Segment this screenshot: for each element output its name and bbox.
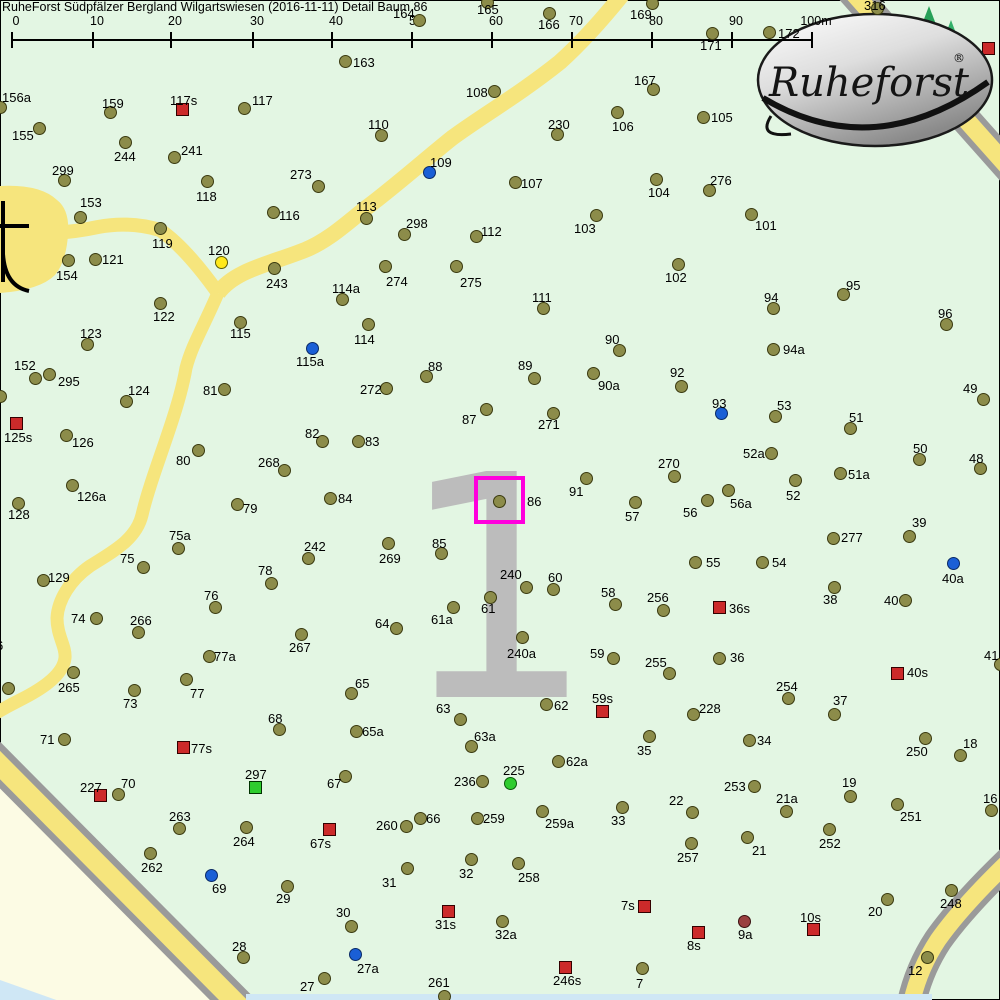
tree-marker-240a[interactable]: [516, 631, 529, 644]
tree-marker-264[interactable]: [240, 821, 253, 834]
tree-marker-121[interactable]: [89, 253, 102, 266]
tree-label: 225: [503, 763, 525, 778]
tree-marker-260[interactable]: [400, 820, 413, 833]
tree-marker-114[interactable]: [362, 318, 375, 331]
tree-label: 256: [647, 590, 669, 605]
tree-label: 78: [258, 563, 272, 578]
tree-label: 91: [569, 484, 583, 499]
tree-label: 81: [203, 383, 217, 398]
tree-label: 65a: [362, 724, 384, 739]
tree-label: 259: [483, 811, 505, 826]
tree-marker-52a[interactable]: [765, 447, 778, 460]
tree-label: 156a: [2, 90, 31, 105]
map-title: RuheForst Südpfälzer Bergland Wilgartswi…: [2, 0, 427, 14]
tree-label: 262: [141, 860, 163, 875]
tree-label: 165: [477, 2, 499, 17]
tree-marker-7[interactable]: [636, 962, 649, 975]
tree-label: 51a: [848, 467, 870, 482]
tree-marker-89[interactable]: [528, 372, 541, 385]
tree-label: 275: [460, 275, 482, 290]
tree-label: 267: [289, 640, 311, 655]
tree-marker-240[interactable]: [520, 581, 533, 594]
tree-label: 32a: [495, 927, 517, 942]
tree-marker-37[interactable]: [828, 708, 841, 721]
tree-marker-67s[interactable]: [323, 823, 336, 836]
tree-marker-246s[interactable]: [559, 961, 572, 974]
tree-label: 299: [52, 163, 74, 178]
tree-label: 253: [724, 779, 746, 794]
tree-marker-62a[interactable]: [552, 755, 565, 768]
tree-label: 64: [375, 616, 389, 631]
tree-label: 20: [868, 904, 882, 919]
tree-marker-152[interactable]: [29, 372, 42, 385]
tree-label: 85: [432, 536, 446, 551]
tree-label: 116: [279, 208, 300, 223]
tree-label: 93: [712, 396, 726, 411]
tree-label: 36s: [729, 601, 750, 616]
tree-label: 82: [305, 426, 319, 441]
tree-label: 55: [706, 555, 720, 570]
tree-label: 295: [58, 374, 80, 389]
scale-tick-label: 0: [13, 14, 20, 28]
tree-label: 263: [169, 809, 191, 824]
tree-label: 87: [462, 412, 476, 427]
tree-marker-31s[interactable]: [442, 905, 455, 918]
tree-label: 18: [963, 736, 977, 751]
tree-marker-57[interactable]: [629, 496, 642, 509]
tree-label: 79: [243, 501, 257, 516]
tree-marker-56[interactable]: [701, 494, 714, 507]
tree-marker-262[interactable]: [144, 847, 157, 860]
tree-marker-258[interactable]: [512, 857, 525, 870]
tree-label: 316: [864, 0, 886, 13]
tree-label: 33: [611, 813, 625, 828]
tree-label: 83: [365, 434, 379, 449]
scale-tick-label: 20: [168, 14, 182, 28]
tree-label: 7: [636, 976, 643, 991]
tree-marker-9a[interactable]: [738, 915, 751, 928]
tree-marker-77[interactable]: [180, 673, 193, 686]
tree-marker[interactable]: [2, 682, 15, 695]
tree-label: 103: [574, 221, 596, 236]
tree-label: 31: [382, 875, 396, 890]
tree-marker-228[interactable]: [687, 708, 700, 721]
tree-label: 101: [755, 218, 777, 233]
tree-marker-7s[interactable]: [638, 900, 651, 913]
tree-marker-107[interactable]: [509, 176, 522, 189]
tree-marker-40[interactable]: [899, 594, 912, 607]
tree-marker-35[interactable]: [643, 730, 656, 743]
tree-label: 80: [176, 453, 190, 468]
tree-label: 154: [56, 268, 78, 283]
tree-label: 27: [300, 979, 314, 994]
tree-label: 32: [459, 866, 473, 881]
tree-marker-33[interactable]: [616, 801, 629, 814]
tree-label: 115: [230, 326, 251, 341]
tree-label: 31s: [435, 917, 456, 932]
tree-label: 123: [80, 326, 102, 341]
tree-label: 84: [338, 491, 352, 506]
scale-tick-label: 40: [329, 14, 343, 28]
tree-marker-94a[interactable]: [767, 343, 780, 356]
tree-label: 92: [670, 365, 684, 380]
tree-marker-277[interactable]: [827, 532, 840, 545]
tree-label: 40a: [942, 571, 964, 586]
tree-marker-83[interactable]: [352, 435, 365, 448]
tree-marker-75a[interactable]: [172, 542, 185, 555]
tree-label: 228: [699, 701, 721, 716]
tree-marker-297[interactable]: [249, 781, 262, 794]
tree-label: 257: [677, 850, 699, 865]
tree-label: 62: [554, 698, 568, 713]
tree-label: 152: [14, 358, 36, 373]
tree-label: 230: [548, 117, 570, 132]
tree-label: 265: [58, 680, 80, 695]
tree-marker-59[interactable]: [607, 652, 620, 665]
map-page: 1 Ruheforst ® 0102030405060708090100m Ru…: [0, 0, 1000, 1000]
tree-label: 105: [711, 110, 733, 125]
tree-marker-172[interactable]: [763, 26, 776, 39]
tree-marker-51a[interactable]: [834, 467, 847, 480]
tree-label: 248: [940, 896, 962, 911]
tree-marker-261[interactable]: [438, 990, 451, 1000]
tree-marker-163[interactable]: [339, 55, 352, 68]
tree-label: 124: [128, 383, 150, 398]
tree-label: 62a: [566, 754, 588, 769]
tree-marker-54[interactable]: [756, 556, 769, 569]
tree-marker-225[interactable]: [504, 777, 517, 790]
tree-label: 270: [658, 456, 680, 471]
tree-marker-65a[interactable]: [350, 725, 363, 738]
tree-label: 108: [466, 85, 488, 100]
tree-label: 252: [819, 836, 841, 851]
tree-label: 241: [181, 143, 203, 158]
tree-marker-117[interactable]: [238, 102, 251, 115]
tree-label: 67: [327, 776, 341, 791]
tree-label: 69: [212, 881, 226, 896]
tree-marker-118[interactable]: [201, 175, 214, 188]
tree-marker-273[interactable]: [312, 180, 325, 193]
tree-marker-55[interactable]: [689, 556, 702, 569]
tree-marker-12[interactable]: [921, 951, 934, 964]
tree-marker-59s[interactable]: [596, 705, 609, 718]
tree-marker-66[interactable]: [414, 812, 427, 825]
tree-marker-19[interactable]: [844, 790, 857, 803]
tree-label: 61a: [431, 612, 453, 627]
tree-marker-105[interactable]: [697, 111, 710, 124]
tree-marker-34[interactable]: [743, 734, 756, 747]
tree-label: 73: [123, 696, 137, 711]
tree-marker-71[interactable]: [58, 733, 71, 746]
tree-marker-21a[interactable]: [780, 805, 793, 818]
tree-marker-62[interactable]: [540, 698, 553, 711]
logo-wordmark: Ruheforst: [768, 60, 970, 106]
tree-label: 246s: [553, 973, 581, 988]
tree-label: 259a: [545, 816, 574, 831]
tree-marker-248[interactable]: [945, 884, 958, 897]
tree-label: 109: [430, 155, 452, 170]
tree-marker-154[interactable]: [62, 254, 75, 267]
tree-label: 128: [8, 507, 30, 522]
tree-label: 37: [833, 693, 847, 708]
tree-label: 297: [245, 767, 267, 782]
tree-marker-64[interactable]: [390, 622, 403, 635]
tree-label: 159: [102, 96, 124, 111]
tree-label: 36: [730, 650, 744, 665]
tree-marker-79[interactable]: [231, 498, 244, 511]
tree-marker-78[interactable]: [265, 577, 278, 590]
tree-label: 258: [518, 870, 540, 885]
tree-marker-295[interactable]: [43, 368, 56, 381]
tree-marker-103[interactable]: [590, 209, 603, 222]
tree-label: 102: [665, 270, 687, 285]
tree-label: 251: [900, 809, 922, 824]
tree-label: 50: [913, 441, 927, 456]
tree-label: 40s: [907, 665, 928, 680]
tree-marker-91[interactable]: [580, 472, 593, 485]
tree-label: 52: [786, 488, 800, 503]
scale-tick-label: 30: [250, 14, 264, 28]
tree-label: 164: [393, 6, 415, 21]
tree-label: 74: [71, 611, 85, 626]
tree-label: 118: [196, 189, 217, 204]
tree-label: 59: [590, 646, 604, 661]
tree-label: 172: [778, 26, 800, 41]
tree-marker-36[interactable]: [713, 652, 726, 665]
tree-label: 153: [80, 195, 102, 210]
tree-label: 66: [426, 811, 440, 826]
tree-label: 261: [428, 975, 450, 990]
tree-marker-80[interactable]: [192, 444, 205, 457]
tree-marker-104[interactable]: [650, 173, 663, 186]
tree-marker-27a[interactable]: [349, 948, 362, 961]
tree-label: 120: [208, 243, 230, 258]
tree-label: 274: [386, 274, 408, 289]
tree-label: 68: [268, 711, 282, 726]
tree-label: 89: [518, 358, 532, 373]
tree-label: 266: [130, 613, 152, 628]
tree-label: 28: [232, 939, 246, 954]
tree-marker-30[interactable]: [345, 920, 358, 933]
tree-marker-270[interactable]: [668, 470, 681, 483]
tree-label: 77a: [214, 649, 236, 664]
tree-marker-56a[interactable]: [722, 484, 735, 497]
tree-label: 121: [102, 252, 124, 267]
tree-label: 94a: [783, 342, 805, 357]
tree-marker-52[interactable]: [789, 474, 802, 487]
scale-tick-label: 70: [569, 14, 583, 28]
tree-marker-126[interactable]: [60, 429, 73, 442]
tree-marker-74[interactable]: [90, 612, 103, 625]
tree-marker-253[interactable]: [748, 780, 761, 793]
tree-label: 264: [233, 834, 255, 849]
tree-label: 21: [752, 843, 766, 858]
tree-marker-36s[interactable]: [713, 601, 726, 614]
scale-tick-label: 10: [90, 14, 104, 28]
tree-label: 70: [121, 776, 135, 791]
tree-label: 41: [984, 648, 998, 663]
tree-label: 8s: [687, 938, 701, 953]
tree-label: 169: [630, 7, 652, 22]
tree-label: 63a: [474, 729, 496, 744]
tree-label: 12: [908, 963, 922, 978]
tree-label: 27a: [357, 961, 379, 976]
tree-marker-265[interactable]: [67, 666, 80, 679]
tree-marker-69[interactable]: [205, 869, 218, 882]
tree-marker-75[interactable]: [137, 561, 150, 574]
tree-label: 255: [645, 655, 667, 670]
tree-marker-250[interactable]: [919, 732, 932, 745]
tree-marker-274[interactable]: [379, 260, 392, 273]
tree-label: 34: [757, 733, 771, 748]
tree-label: 30: [336, 905, 350, 920]
tree-marker-84[interactable]: [324, 492, 337, 505]
tree-marker-267[interactable]: [295, 628, 308, 641]
tree-marker-81[interactable]: [218, 383, 231, 396]
tree-label: 54: [772, 555, 786, 570]
tree-label: 58: [601, 585, 615, 600]
tree-label: 29: [276, 891, 290, 906]
tree-label: 242: [304, 539, 326, 554]
tree-marker-259[interactable]: [471, 812, 484, 825]
tree-label: 90: [605, 332, 619, 347]
tree-marker-31[interactable]: [401, 862, 414, 875]
tree-label: 129: [48, 570, 70, 585]
tree-marker-241[interactable]: [168, 151, 181, 164]
tree-marker-77s[interactable]: [177, 741, 190, 754]
tree-label: 298: [406, 216, 428, 231]
tree-marker-155[interactable]: [33, 122, 46, 135]
tree-label: 122: [153, 309, 175, 324]
tree-label: 227: [80, 780, 102, 795]
tree-label: 35: [637, 743, 651, 758]
tree-marker-27[interactable]: [318, 972, 331, 985]
tree-marker-49[interactable]: [977, 393, 990, 406]
tree-marker-122[interactable]: [154, 297, 167, 310]
tree-label: 77s: [191, 741, 212, 756]
tree-label: 112: [481, 224, 502, 239]
tree-marker-115a[interactable]: [306, 342, 319, 355]
tree-label: 90a: [598, 378, 620, 393]
tree-label: 115a: [296, 354, 324, 369]
tree-label: 171: [700, 38, 722, 53]
tree-marker-257[interactable]: [685, 837, 698, 850]
tree-marker-22[interactable]: [686, 806, 699, 819]
tree-marker-32a[interactable]: [496, 915, 509, 928]
tree-marker-153[interactable]: [74, 211, 87, 224]
tree-label: 277: [841, 530, 863, 545]
tree-label: 95: [846, 278, 860, 293]
tree-marker-275[interactable]: [450, 260, 463, 273]
tree-label: 166: [538, 17, 560, 32]
tree-marker-63[interactable]: [454, 713, 467, 726]
tree-marker-21[interactable]: [741, 831, 754, 844]
tree-label: 86: [527, 494, 541, 509]
tree-marker-236[interactable]: [476, 775, 489, 788]
tree-label: 268: [258, 455, 280, 470]
tree-label: 240a: [507, 646, 536, 661]
tree-label: 53: [777, 398, 791, 413]
tree-label: 65: [355, 676, 369, 691]
tree-label: 244: [114, 149, 136, 164]
tree-label: 77: [190, 686, 204, 701]
tree-label: 110: [368, 117, 389, 132]
tree-label: 7s: [621, 898, 635, 913]
tree-marker-106[interactable]: [611, 106, 624, 119]
tree-label: 104: [648, 185, 670, 200]
tree-label: 114a: [332, 281, 360, 296]
tree-marker-32[interactable]: [465, 853, 478, 866]
tree-label: 75: [120, 551, 134, 566]
tree-marker-119[interactable]: [154, 222, 167, 235]
tree-label: 40: [884, 593, 898, 608]
tree-label: 52a: [743, 446, 765, 461]
tree-label: 106: [612, 119, 634, 134]
tree-label: 67s: [310, 836, 331, 851]
tree-marker-73[interactable]: [128, 684, 141, 697]
tree-label: 126: [72, 435, 94, 450]
tree-label: 155: [12, 128, 34, 143]
tree-marker-39[interactable]: [903, 530, 916, 543]
tree-marker-243[interactable]: [268, 262, 281, 275]
tree-label: 38: [823, 592, 837, 607]
tree-marker-269[interactable]: [382, 537, 395, 550]
tree-marker-244[interactable]: [119, 136, 132, 149]
tree-label: 21a: [776, 791, 798, 806]
tree-label: 269: [379, 551, 401, 566]
tree-label: 119: [152, 236, 173, 251]
tree-marker-256[interactable]: [657, 604, 670, 617]
tree-label: 96: [938, 306, 952, 321]
tree-label: 272: [360, 382, 382, 397]
tree-marker-40s[interactable]: [891, 667, 904, 680]
tree-label: 76: [204, 588, 218, 603]
tree-label: 61: [481, 601, 495, 616]
tree-marker-8s[interactable]: [692, 926, 705, 939]
tree-label: 236: [454, 774, 476, 789]
tree-label: 48: [969, 451, 983, 466]
tree-label: 117s: [170, 93, 197, 108]
tree-label: 163: [353, 55, 375, 70]
tree-marker-108[interactable]: [488, 85, 501, 98]
scale-tick-label: 100m: [800, 14, 831, 28]
tree-label: 113: [356, 199, 377, 214]
tree-label: 271: [538, 417, 560, 432]
tree-marker-87[interactable]: [480, 403, 493, 416]
tree-marker[interactable]: [0, 390, 7, 403]
tree-marker-252[interactable]: [823, 823, 836, 836]
scale-tick-label: 90: [729, 14, 743, 28]
tree-label: 56: [683, 505, 697, 520]
tree-marker-102[interactable]: [672, 258, 685, 271]
tree-label: 276: [710, 173, 732, 188]
tree-label: 39: [912, 515, 926, 530]
tree-label: 60: [548, 570, 562, 585]
tree-marker-125s[interactable]: [10, 417, 23, 430]
tree-label: 22: [669, 793, 683, 808]
tree-label: 56a: [730, 496, 752, 511]
tree-marker-92[interactable]: [675, 380, 688, 393]
tree-label: 125s: [4, 430, 32, 445]
tree-label: 6: [0, 638, 3, 653]
tree-marker-40a[interactable]: [947, 557, 960, 570]
tree-label: 9a: [738, 927, 752, 942]
tree-label: 243: [266, 276, 288, 291]
tree-label: 254: [776, 679, 798, 694]
tree-label: 107: [521, 176, 543, 191]
tree-marker-116[interactable]: [267, 206, 280, 219]
selected-tree-highlight: [474, 476, 525, 524]
